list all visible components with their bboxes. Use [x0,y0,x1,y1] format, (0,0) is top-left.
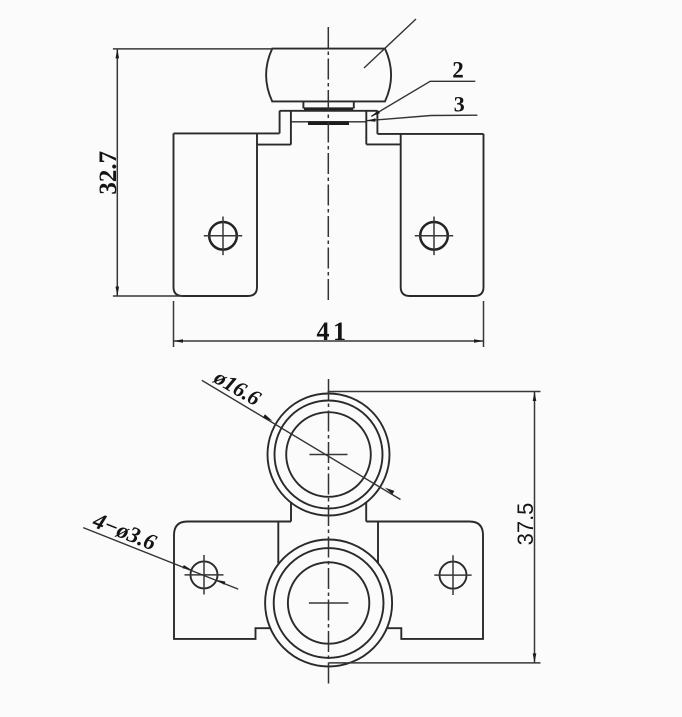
svg-text:41: 41 [317,317,350,346]
svg-text:3: 3 [454,92,465,117]
svg-text:2: 2 [452,58,464,83]
svg-text:37.5: 37.5 [513,503,538,546]
svg-text:32.7: 32.7 [95,151,122,195]
